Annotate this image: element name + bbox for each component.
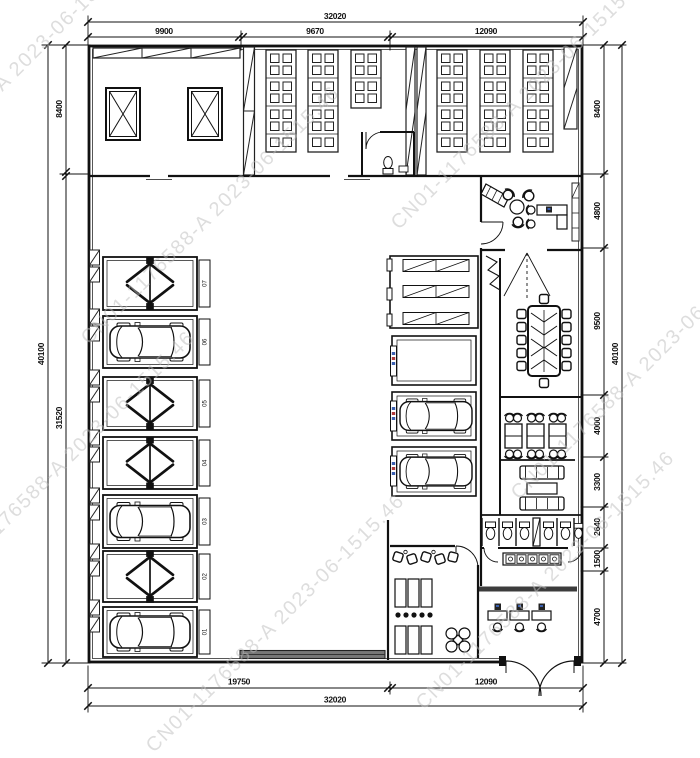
- chair-icon: [517, 349, 526, 358]
- service-bay: 07: [103, 257, 210, 310]
- service-bay: 05: [103, 377, 210, 430]
- chair-icon: [517, 336, 526, 345]
- chair-icon: [512, 217, 524, 227]
- toilet-icon: [561, 522, 571, 540]
- desk-cluster: [527, 413, 545, 458]
- ramp-track: [403, 313, 469, 325]
- chair-icon: [517, 323, 526, 332]
- car-icon: [110, 613, 190, 652]
- chair-icon: [517, 362, 526, 371]
- car-bay: [391, 447, 477, 496]
- dim-bottom-seg2: 12090: [475, 677, 498, 687]
- waiting-room: [388, 520, 478, 660]
- dim-right-total: 40100: [610, 342, 620, 365]
- round-table-group: [446, 628, 470, 652]
- dim-top: 32020 9900 9670 12090: [85, 11, 586, 50]
- table-group: [395, 579, 432, 607]
- sofa-icon: [520, 497, 564, 510]
- dim-top-total: 32020: [324, 11, 347, 21]
- dim-left-seg2: 31520: [54, 406, 64, 429]
- waiting-chairs-row: [392, 550, 458, 564]
- car-icon: [110, 323, 190, 362]
- dim-right: 8400 4800 9500 4000 3300 2640 1500 4700 …: [581, 42, 626, 666]
- service-bay: 04: [103, 437, 210, 490]
- bay-number: 06: [203, 338, 209, 345]
- ramp-track: [403, 260, 469, 272]
- open-office-room: [500, 413, 575, 460]
- desk-cluster: [505, 413, 523, 458]
- dim-right-seg5: 3300: [592, 473, 602, 491]
- chair-icon: [526, 205, 535, 215]
- bay-number: 01: [203, 628, 209, 635]
- table-group: [395, 626, 432, 654]
- reception-desk: [532, 604, 551, 632]
- dim-bottom-total: 32020: [324, 695, 347, 705]
- sink-icon: [399, 166, 408, 172]
- toilet-icon: [503, 522, 513, 540]
- toilet-icon: [574, 524, 583, 539]
- car-bay: [391, 392, 477, 440]
- storage-rack: [523, 50, 553, 152]
- floor-plan-drawing: 32020 9900 9670 12090 19750 12090 32020 …: [0, 0, 700, 733]
- toilet-icon: [486, 522, 496, 540]
- car-icon: [400, 454, 472, 489]
- wall-pilasters: [90, 250, 100, 632]
- hatched-wall-panels: [93, 48, 240, 58]
- empty-bay: [391, 336, 477, 385]
- dim-right-seg4: 4000: [592, 417, 602, 435]
- lounge-room: [481, 466, 583, 515]
- toilet-icon: [544, 522, 554, 540]
- window-sill: [572, 183, 579, 241]
- service-bays-left: 07 06 05 04 03 02: [90, 250, 211, 657]
- chair-icon: [517, 310, 526, 319]
- service-bays-middle: [387, 256, 478, 496]
- equipment-box: [188, 88, 222, 140]
- alignment-bay: [387, 256, 478, 328]
- bay-number: 04: [203, 459, 209, 466]
- bay-number: 03: [203, 518, 209, 525]
- service-bay: 01: [103, 607, 210, 657]
- dim-left: 8400 31520 40100: [36, 42, 90, 666]
- rolling-door: [240, 651, 385, 659]
- storage-rack: [266, 50, 296, 152]
- service-bay: 06: [103, 316, 210, 368]
- equipment-box: [106, 88, 140, 140]
- reception-desk: [510, 604, 529, 632]
- storage-rack: [437, 50, 467, 152]
- reception-desk: [488, 604, 507, 632]
- right-rooms: [477, 176, 583, 592]
- floor-plan-page: { "dimensions": { "top": { "total": "320…: [0, 0, 700, 733]
- bay-number: 05: [203, 400, 209, 407]
- car-icon: [400, 398, 472, 433]
- dim-top-seg3: 12090: [475, 26, 498, 36]
- round-table: [510, 200, 524, 214]
- sink-counter: [503, 553, 561, 565]
- thick-wall: [477, 587, 577, 592]
- computer-desk: [537, 205, 567, 229]
- car-icon: [110, 502, 190, 541]
- coffee-table: [527, 483, 557, 494]
- dim-right-seg1: 8400: [592, 100, 602, 118]
- chair-icon: [540, 379, 549, 388]
- bay-number: 07: [203, 280, 209, 287]
- hatched-corner-strip: [564, 47, 577, 129]
- desk-cluster: [549, 413, 567, 458]
- conference-table: [528, 306, 560, 376]
- restrooms: [477, 518, 583, 592]
- chair-icon: [562, 349, 571, 358]
- band-bottom-wall: [89, 176, 583, 180]
- dim-top-seg2: 9670: [306, 26, 324, 36]
- dim-top-seg1: 9900: [155, 26, 173, 36]
- hatched-divider: [244, 47, 255, 175]
- dim-bottom: 19750 12090 32020: [85, 666, 586, 712]
- chair-icon: [540, 295, 549, 304]
- bay-number: 02: [203, 573, 209, 580]
- dim-right-seg7: 1500: [592, 550, 602, 568]
- reception-desks: [488, 604, 551, 632]
- chair-icon: [562, 362, 571, 371]
- ramp-track: [403, 286, 469, 298]
- dim-right-seg8: 4700: [592, 608, 602, 626]
- toilet-icon: [520, 522, 530, 540]
- chair-icon: [526, 219, 535, 229]
- folding-door: [486, 256, 500, 290]
- chair-icon: [562, 323, 571, 332]
- service-bay: 03: [103, 495, 210, 548]
- storage-rack: [351, 50, 381, 108]
- customer-area: [388, 520, 581, 696]
- chair-icon: [521, 188, 537, 204]
- hatched-divider: [406, 47, 426, 175]
- storage-rack: [308, 50, 338, 152]
- storage-band: [89, 47, 583, 180]
- office-room: [481, 183, 583, 250]
- dim-right-seg6: 2640: [592, 518, 602, 536]
- dim-bottom-seg1: 19750: [228, 677, 251, 687]
- storage-rack: [480, 50, 510, 152]
- dim-right-seg2: 4800: [592, 202, 602, 220]
- stool-dots: [395, 612, 432, 617]
- dim-left-total: 40100: [36, 342, 46, 365]
- chair-icon: [562, 336, 571, 345]
- workshop-features: [240, 651, 385, 659]
- dim-left-seg1: 8400: [54, 100, 64, 118]
- dim-right-seg3: 9500: [592, 312, 602, 330]
- service-bay: 02: [103, 550, 210, 603]
- sofa-icon: [520, 466, 564, 479]
- toilet-icon: [383, 157, 393, 175]
- chair-icon: [562, 310, 571, 319]
- main-entrance: [499, 656, 581, 696]
